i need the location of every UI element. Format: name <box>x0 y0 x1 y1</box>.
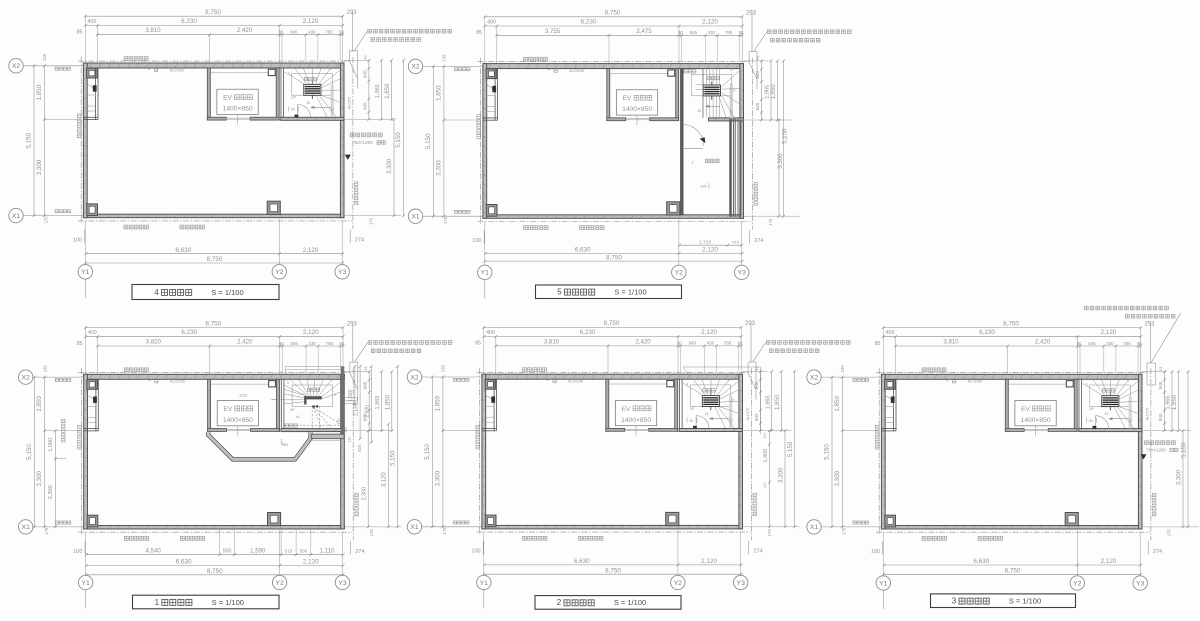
svg-text:93: 93 <box>755 367 759 371</box>
svg-text:2,120: 2,120 <box>303 18 319 25</box>
svg-text:175: 175 <box>442 527 447 535</box>
svg-text:293: 293 <box>1144 321 1155 327</box>
svg-text:Y3: Y3 <box>1136 580 1145 587</box>
svg-text:1,965: 1,965 <box>375 396 381 410</box>
svg-text:1,850: 1,850 <box>774 394 781 410</box>
svg-text:S = 1/100: S = 1/100 <box>614 598 646 607</box>
svg-text:3,810: 3,810 <box>145 27 161 34</box>
svg-text:EV: EV <box>623 95 632 102</box>
svg-text:845: 845 <box>291 341 299 346</box>
svg-text:9: 9 <box>334 393 336 397</box>
svg-text:5,150: 5,150 <box>781 128 788 144</box>
svg-text:293: 293 <box>346 10 357 16</box>
svg-text:3: 3 <box>692 161 694 165</box>
svg-text:15: 15 <box>1104 412 1108 416</box>
svg-text:5,150: 5,150 <box>424 444 431 460</box>
svg-text:12: 12 <box>1129 419 1133 423</box>
svg-text:175: 175 <box>1167 529 1172 537</box>
svg-text:Y3: Y3 <box>737 580 746 587</box>
svg-text:845: 845 <box>689 341 697 346</box>
svg-text:Y1: Y1 <box>480 580 489 587</box>
svg-text:1,850: 1,850 <box>36 84 43 100</box>
svg-text:785: 785 <box>1123 341 1131 346</box>
svg-text:5,150: 5,150 <box>824 444 831 460</box>
svg-text:5,150: 5,150 <box>395 132 402 148</box>
svg-text:2,120: 2,120 <box>303 247 319 254</box>
svg-text:6,630: 6,630 <box>175 247 191 254</box>
svg-text:820: 820 <box>357 444 362 452</box>
svg-text:EV: EV <box>1021 406 1030 413</box>
svg-text:845: 845 <box>290 30 298 35</box>
svg-text:6: 6 <box>331 378 333 382</box>
svg-text:430: 430 <box>708 30 716 35</box>
svg-text:1,590: 1,590 <box>250 548 266 555</box>
svg-text:1400×850: 1400×850 <box>621 417 651 424</box>
svg-text:5,150: 5,150 <box>425 133 432 149</box>
svg-text:X1: X1 <box>411 214 420 221</box>
svg-text:845: 845 <box>1158 413 1163 421</box>
svg-text:Y2: Y2 <box>675 270 684 277</box>
svg-text:1,850: 1,850 <box>834 396 841 412</box>
svg-text:2,120: 2,120 <box>1101 329 1117 336</box>
svg-text:12: 12 <box>729 419 733 423</box>
svg-text:1,850: 1,850 <box>770 84 777 100</box>
svg-text:UP: UP <box>290 408 295 412</box>
svg-text:85: 85 <box>875 341 881 347</box>
svg-text:1,965: 1,965 <box>375 84 381 98</box>
svg-text:2,120: 2,120 <box>701 558 717 565</box>
svg-text:100: 100 <box>763 433 767 439</box>
svg-text:-50: -50 <box>290 108 295 112</box>
svg-text:UP: UP <box>1089 407 1094 411</box>
svg-text:430: 430 <box>707 341 715 346</box>
svg-text:90: 90 <box>339 30 344 35</box>
svg-text:3: 3 <box>287 381 289 385</box>
svg-text:6,630: 6,630 <box>176 559 192 566</box>
svg-text:10: 10 <box>731 399 735 403</box>
svg-text:Y3: Y3 <box>338 580 347 587</box>
svg-text:Y1: Y1 <box>81 269 90 276</box>
svg-text:Y3: Y3 <box>338 269 347 276</box>
svg-text:6,630: 6,630 <box>973 558 989 565</box>
svg-text:2,030: 2,030 <box>365 405 371 418</box>
svg-text:293: 293 <box>745 321 756 327</box>
svg-text:6,230: 6,230 <box>979 329 995 336</box>
svg-text:3,755: 3,755 <box>545 28 561 35</box>
svg-text:1,660: 1,660 <box>348 389 354 402</box>
svg-text:8: 8 <box>1127 378 1129 382</box>
svg-text:3,300: 3,300 <box>435 160 442 176</box>
svg-text:1,850: 1,850 <box>435 85 442 101</box>
svg-text:8: 8 <box>728 378 730 382</box>
svg-text:293: 293 <box>347 321 358 327</box>
svg-text:274: 274 <box>355 549 364 555</box>
svg-text:S = 1/100: S = 1/100 <box>614 288 646 297</box>
svg-text:1,400: 1,400 <box>763 449 769 463</box>
svg-text:5,150: 5,150 <box>389 450 396 466</box>
svg-text:8: 8 <box>329 67 331 71</box>
svg-text:2,120: 2,120 <box>303 329 319 336</box>
svg-text:274: 274 <box>753 549 762 555</box>
svg-text:12: 12 <box>331 108 335 112</box>
svg-text:1: 1 <box>155 598 160 607</box>
svg-text:2,120: 2,120 <box>701 329 717 336</box>
svg-text:ALCt100: ALCt100 <box>569 69 584 73</box>
svg-text:85: 85 <box>77 341 83 347</box>
svg-text:93: 93 <box>364 367 368 371</box>
svg-text:190: 190 <box>336 418 340 424</box>
svg-text:93: 93 <box>364 55 368 59</box>
svg-text:3,300: 3,300 <box>777 153 784 169</box>
svg-text:ALCt100: ALCt100 <box>968 380 983 384</box>
svg-text:2,120: 2,120 <box>303 559 319 566</box>
svg-text:139: 139 <box>442 54 447 62</box>
svg-text:845: 845 <box>690 30 698 35</box>
svg-text:1,850: 1,850 <box>384 83 391 99</box>
svg-text:8,750: 8,750 <box>604 320 620 327</box>
svg-text:X1: X1 <box>410 524 419 531</box>
svg-text:785: 785 <box>724 341 732 346</box>
svg-text:274: 274 <box>1153 549 1162 555</box>
svg-text:85: 85 <box>77 30 83 36</box>
svg-text:1,965: 1,965 <box>765 395 771 409</box>
svg-text:1,850: 1,850 <box>1171 394 1178 410</box>
svg-text:100: 100 <box>73 238 82 244</box>
svg-text:5,150: 5,150 <box>26 444 33 460</box>
svg-text:-50: -50 <box>1088 419 1093 423</box>
svg-text:UP: UP <box>291 96 296 100</box>
svg-text:EV: EV <box>223 406 232 413</box>
svg-text:8,750: 8,750 <box>205 9 221 16</box>
svg-text:2,120: 2,120 <box>702 247 718 254</box>
svg-text:X2: X2 <box>12 63 21 70</box>
svg-text:3,300: 3,300 <box>834 470 841 486</box>
svg-text:1400×850: 1400×850 <box>1021 417 1051 424</box>
svg-text:90: 90 <box>1137 341 1142 346</box>
svg-text:EV: EV <box>622 406 631 413</box>
svg-text:274: 274 <box>355 238 364 244</box>
svg-text:3,300: 3,300 <box>778 467 785 483</box>
svg-text:ALCt100: ALCt100 <box>170 68 185 72</box>
svg-text:175: 175 <box>369 217 374 225</box>
svg-text:190: 190 <box>344 427 348 433</box>
svg-text:430: 430 <box>309 341 317 346</box>
svg-text:15: 15 <box>705 412 709 416</box>
svg-text:2,420: 2,420 <box>635 338 651 345</box>
svg-text:90: 90 <box>738 341 743 346</box>
svg-text:400: 400 <box>886 330 895 336</box>
svg-text:3,300: 3,300 <box>386 158 393 174</box>
svg-text:X1: X1 <box>12 213 21 220</box>
svg-text:S = 1/100: S = 1/100 <box>1009 597 1041 606</box>
svg-text:85: 85 <box>476 30 482 36</box>
svg-text:785: 785 <box>725 30 733 35</box>
svg-text:400: 400 <box>88 19 97 25</box>
svg-text:2,120: 2,120 <box>1101 558 1117 565</box>
svg-text:400: 400 <box>487 19 496 25</box>
svg-text:8,750: 8,750 <box>605 567 621 574</box>
svg-text:100: 100 <box>73 549 82 555</box>
svg-text:175: 175 <box>842 527 847 535</box>
svg-text:8,750: 8,750 <box>1005 568 1021 575</box>
svg-text:4: 4 <box>154 288 159 297</box>
svg-text:15: 15 <box>697 109 701 113</box>
svg-text:6,630: 6,630 <box>574 558 590 565</box>
svg-text:8,750: 8,750 <box>605 10 621 17</box>
svg-text:EV: EV <box>223 95 232 102</box>
svg-text:5,150: 5,150 <box>1180 442 1187 458</box>
svg-text:-1250: -1250 <box>238 393 247 397</box>
svg-text:6,630: 6,630 <box>575 247 591 254</box>
svg-text:2,420: 2,420 <box>1035 339 1051 346</box>
svg-text:3,300: 3,300 <box>36 470 43 486</box>
svg-text:ALCt75: ALCt75 <box>1146 408 1150 420</box>
svg-text:ALCt75: ALCt75 <box>348 97 352 109</box>
svg-text:1,710: 1,710 <box>699 239 711 245</box>
svg-text:845: 845 <box>754 413 759 421</box>
svg-text:X1: X1 <box>22 524 31 531</box>
svg-text:ALCt100: ALCt100 <box>170 380 185 384</box>
svg-text:1,000: 1,000 <box>48 438 54 452</box>
svg-text:175: 175 <box>44 216 49 224</box>
svg-text:3,810: 3,810 <box>943 339 959 346</box>
svg-text:400: 400 <box>88 330 97 336</box>
svg-text:Y2: Y2 <box>275 269 284 276</box>
svg-text:11: 11 <box>729 109 733 113</box>
svg-text:3: 3 <box>288 72 290 76</box>
svg-text:9: 9 <box>733 88 735 92</box>
svg-text:100: 100 <box>472 238 481 244</box>
svg-text:274: 274 <box>754 238 763 244</box>
svg-text:85: 85 <box>475 341 481 347</box>
svg-text:2: 2 <box>557 598 562 607</box>
svg-text:5: 5 <box>557 288 562 297</box>
svg-text:190: 190 <box>282 443 288 447</box>
svg-text:430: 430 <box>308 30 316 35</box>
svg-text:175: 175 <box>369 529 374 537</box>
svg-text:Y1: Y1 <box>879 580 888 587</box>
svg-text:6,230: 6,230 <box>181 329 197 336</box>
svg-text:139: 139 <box>441 365 446 373</box>
svg-text:ALCt75: ALCt75 <box>746 408 750 420</box>
svg-text:1,110: 1,110 <box>320 548 335 555</box>
svg-text:-300: -300 <box>699 185 706 189</box>
svg-text:90: 90 <box>339 341 344 346</box>
svg-text:400: 400 <box>486 330 495 336</box>
svg-text:139: 139 <box>840 365 845 373</box>
svg-text:Y3: Y3 <box>738 270 747 277</box>
svg-text:500: 500 <box>300 549 308 554</box>
svg-text:170: 170 <box>348 437 352 443</box>
svg-text:845: 845 <box>1158 381 1163 389</box>
svg-text:8,750: 8,750 <box>1003 320 1019 327</box>
svg-text:845: 845 <box>363 381 368 389</box>
svg-text:3: 3 <box>1086 383 1088 387</box>
svg-text:6,230: 6,230 <box>181 18 197 25</box>
svg-text:2,300: 2,300 <box>362 487 368 501</box>
svg-text:3,300: 3,300 <box>434 470 441 486</box>
svg-text:90: 90 <box>739 30 744 35</box>
svg-text:93: 93 <box>1159 367 1163 371</box>
svg-text:175: 175 <box>44 527 49 535</box>
svg-text:5,150: 5,150 <box>26 132 33 148</box>
svg-text:3,810: 3,810 <box>146 339 162 346</box>
svg-text:X1: X1 <box>810 524 819 531</box>
svg-text:Y2: Y2 <box>275 580 284 587</box>
svg-text:1400×850: 1400×850 <box>223 106 253 113</box>
svg-text:S = 1/100: S = 1/100 <box>212 598 244 607</box>
svg-text:750×1200: 750×1200 <box>1146 448 1166 453</box>
svg-text:3: 3 <box>686 383 688 387</box>
svg-text:±0: ±0 <box>296 415 300 419</box>
svg-text:6,230: 6,230 <box>581 18 597 25</box>
svg-text:X2: X2 <box>810 374 819 381</box>
svg-text:845: 845 <box>754 381 759 389</box>
svg-text:4,540: 4,540 <box>145 548 161 555</box>
svg-text:1400×850: 1400×850 <box>223 417 253 424</box>
svg-text:6,230: 6,230 <box>580 329 596 336</box>
svg-text:S = 1/100: S = 1/100 <box>211 288 243 297</box>
svg-text:ALCt100: ALCt100 <box>568 380 583 384</box>
svg-text:93: 93 <box>756 56 760 60</box>
svg-text:UP: UP <box>690 407 695 411</box>
svg-text:293: 293 <box>746 11 757 17</box>
svg-text:845: 845 <box>755 71 760 79</box>
svg-text:2,420: 2,420 <box>237 339 253 346</box>
svg-text:175: 175 <box>443 216 448 224</box>
svg-text:1,850: 1,850 <box>384 394 391 410</box>
svg-text:3,300: 3,300 <box>36 159 43 175</box>
svg-text:Y2: Y2 <box>1073 580 1082 587</box>
svg-text:8: 8 <box>731 68 733 72</box>
svg-text:Y1: Y1 <box>81 580 90 587</box>
svg-text:1400×850: 1400×850 <box>622 106 652 113</box>
svg-text:785: 785 <box>325 30 333 35</box>
svg-text:139: 139 <box>42 365 47 373</box>
svg-text:410: 410 <box>732 239 739 244</box>
svg-text:3,120: 3,120 <box>382 472 388 488</box>
svg-text:845: 845 <box>1088 341 1096 346</box>
svg-text:X2: X2 <box>411 64 420 71</box>
svg-text:2,120: 2,120 <box>702 18 718 25</box>
svg-text:2,135: 2,135 <box>353 403 359 416</box>
svg-text:175: 175 <box>767 529 772 537</box>
svg-text:500: 500 <box>223 549 232 555</box>
svg-text:Y2: Y2 <box>674 580 683 587</box>
svg-text:3: 3 <box>952 597 957 606</box>
svg-text:139: 139 <box>42 53 47 61</box>
svg-text:2,420: 2,420 <box>237 27 253 34</box>
svg-text:X2: X2 <box>410 374 419 381</box>
svg-text:750×1200: 750×1200 <box>352 140 373 145</box>
svg-text:8,750: 8,750 <box>606 254 622 261</box>
svg-text:X2: X2 <box>22 374 31 381</box>
svg-text:175: 175 <box>768 218 773 226</box>
svg-text:3,300: 3,300 <box>1175 469 1182 485</box>
svg-text:785: 785 <box>326 341 334 346</box>
svg-text:845: 845 <box>362 70 367 78</box>
svg-text:8,750: 8,750 <box>207 256 223 263</box>
svg-text:Y1: Y1 <box>481 270 490 277</box>
svg-text:2,475: 2,475 <box>636 28 652 35</box>
svg-text:845: 845 <box>362 102 367 110</box>
svg-text:100: 100 <box>763 482 767 488</box>
svg-text:510: 510 <box>285 549 293 554</box>
svg-text:8,750: 8,750 <box>205 320 221 327</box>
svg-text:430: 430 <box>1106 341 1114 346</box>
svg-text:5,150: 5,150 <box>787 441 794 457</box>
svg-text:3,810: 3,810 <box>544 338 560 345</box>
svg-text:2,300: 2,300 <box>48 485 54 499</box>
svg-text:845: 845 <box>755 102 760 110</box>
svg-text:8,750: 8,750 <box>207 568 223 575</box>
svg-text:1,850: 1,850 <box>434 395 441 411</box>
svg-text:15: 15 <box>306 101 310 105</box>
svg-text:1,850: 1,850 <box>36 396 43 412</box>
svg-text:-50: -50 <box>689 419 694 423</box>
svg-text:100: 100 <box>471 549 480 555</box>
svg-text:100: 100 <box>871 549 880 555</box>
